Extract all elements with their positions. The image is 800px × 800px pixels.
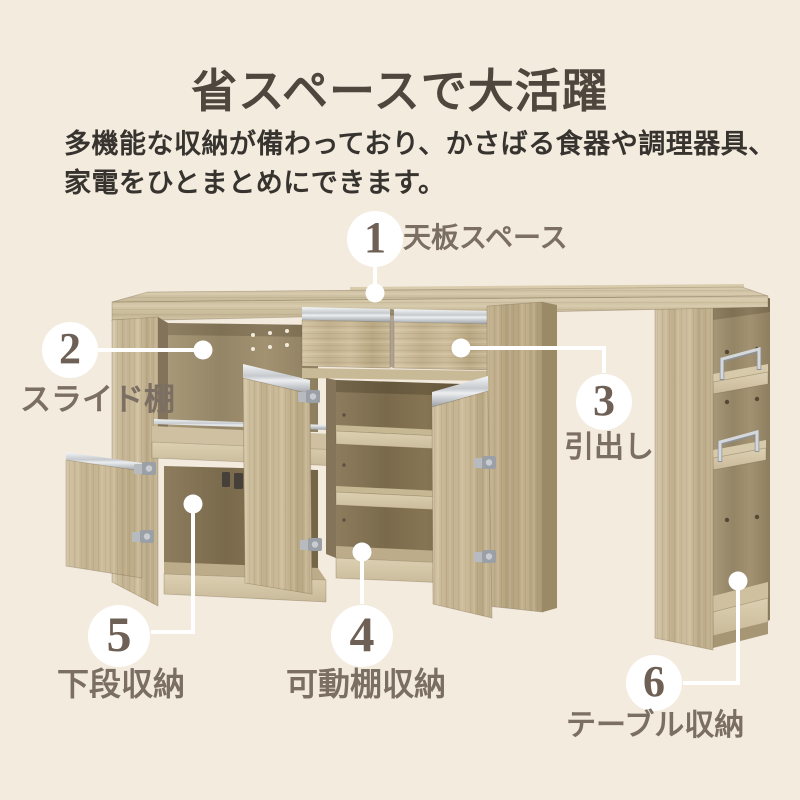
open-door-middle bbox=[234, 364, 322, 594]
callout-2-badge: 2 bbox=[42, 322, 98, 378]
callout-3-badge: 3 bbox=[576, 374, 632, 430]
callout-1-label: 天板スペース bbox=[403, 224, 568, 255]
callout-2-label: スライド棚 bbox=[20, 383, 175, 417]
callout-2-dot bbox=[194, 341, 213, 360]
open-door-right bbox=[432, 376, 496, 618]
callout-1-badge: 1 bbox=[347, 211, 403, 267]
product-feature-page: 省スペースで大活躍 多機能な収納が備わっており、かさばる食器や調理器具、家電をひ… bbox=[0, 0, 800, 800]
callout-1-dot bbox=[366, 284, 385, 303]
table-storage-unit bbox=[655, 298, 770, 650]
callout-6-badge: 6 bbox=[626, 655, 682, 711]
callout-4-number: 4 bbox=[350, 605, 375, 663]
callout-5-number: 5 bbox=[107, 605, 132, 663]
callout-4-badge: 4 bbox=[331, 605, 393, 667]
callout-6-dot bbox=[729, 572, 748, 591]
callout-5-dot bbox=[184, 495, 203, 514]
callout-2-number: 2 bbox=[59, 323, 81, 374]
drawer-rail-left bbox=[302, 307, 390, 322]
callout-3-dot bbox=[452, 339, 471, 358]
callout-5-badge: 5 bbox=[88, 605, 150, 667]
callout-3-label: 引出し bbox=[564, 431, 654, 464]
callout-4-dot bbox=[353, 543, 372, 562]
drawer-rail-right bbox=[394, 309, 488, 324]
door-catch bbox=[234, 473, 243, 489]
door-catch bbox=[222, 472, 230, 487]
callout-6-label: テーブル収納 bbox=[566, 709, 744, 742]
callout-5-label: 下段収納 bbox=[57, 667, 185, 702]
callout-1-number: 1 bbox=[364, 212, 386, 263]
callout-4-label: 可動棚収納 bbox=[286, 667, 446, 702]
callout-3-number: 3 bbox=[593, 375, 615, 426]
callout-6-number: 6 bbox=[643, 656, 665, 707]
